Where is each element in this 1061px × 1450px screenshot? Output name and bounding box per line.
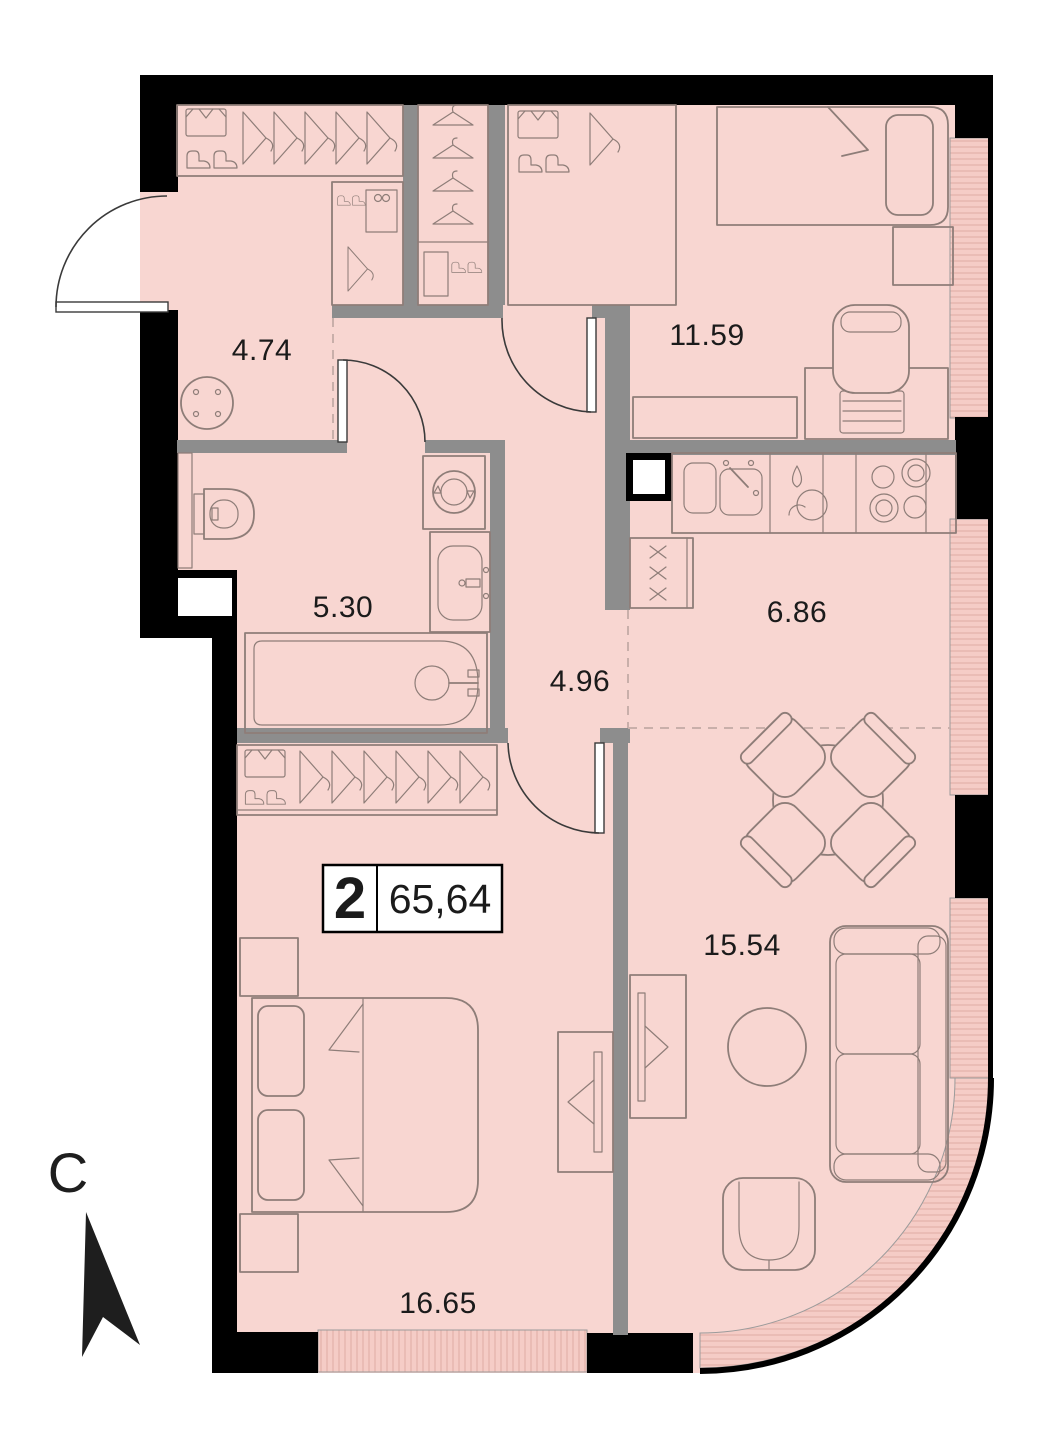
room-label-living-room: 15.54 — [703, 929, 781, 962]
north-label: С — [48, 1141, 88, 1204]
apartment-badge: 2 65,64 — [323, 865, 502, 932]
room-label-master-bedroom: 16.65 — [399, 1287, 477, 1320]
badge-total-area: 65,64 — [389, 876, 492, 922]
window-living — [950, 898, 990, 1078]
room-label-hallway: 4.96 — [550, 665, 610, 698]
room-label-bedroom: 11.59 — [669, 319, 744, 352]
north-arrow-icon — [82, 1212, 140, 1357]
window-bedroom — [950, 138, 990, 418]
room-label-kitchen: 6.86 — [767, 596, 827, 629]
room-label-bathroom: 5.30 — [313, 591, 373, 624]
room-label-entry-hall: 4.74 — [232, 334, 292, 367]
badge-rooms-count: 2 — [334, 866, 366, 931]
wall-niche — [178, 578, 232, 616]
compass: С — [48, 1141, 140, 1357]
floorplan-page: 4.74 11.59 5.30 4.96 6.86 15.54 16.65 2 … — [0, 0, 1061, 1450]
floor-plan: 4.74 11.59 5.30 4.96 6.86 15.54 16.65 2 … — [0, 0, 1061, 1450]
window-master-bedroom — [318, 1330, 587, 1372]
desk-chair — [833, 305, 909, 393]
window-kitchen — [950, 519, 990, 795]
